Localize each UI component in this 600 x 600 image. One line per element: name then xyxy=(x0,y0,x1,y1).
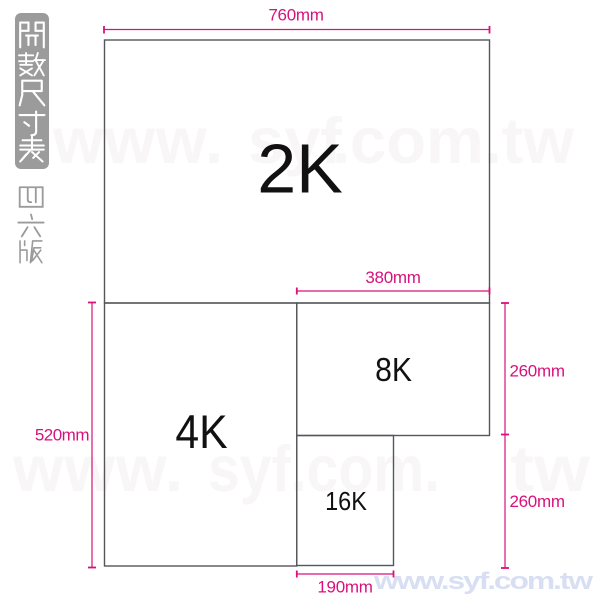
svg-text:520mm: 520mm xyxy=(35,426,90,445)
svg-text:4K: 4K xyxy=(175,405,227,459)
svg-text:.com.tw: .com.tw xyxy=(332,104,574,177)
svg-text:syf.com.: syf.com. xyxy=(208,432,440,505)
svg-text:2K: 2K xyxy=(257,129,343,207)
svg-text:760mm: 760mm xyxy=(268,6,323,25)
svg-text:380mm: 380mm xyxy=(365,268,420,287)
svg-text:260mm: 260mm xyxy=(510,492,565,511)
svg-text:www.: www. xyxy=(52,104,223,177)
svg-text:260mm: 260mm xyxy=(510,362,565,381)
svg-text:190mm: 190mm xyxy=(317,578,372,597)
svg-text:8K: 8K xyxy=(375,351,412,389)
svg-text:16K: 16K xyxy=(325,488,367,516)
svg-text:www.syf.com.tw: www.syf.com.tw xyxy=(373,567,594,595)
